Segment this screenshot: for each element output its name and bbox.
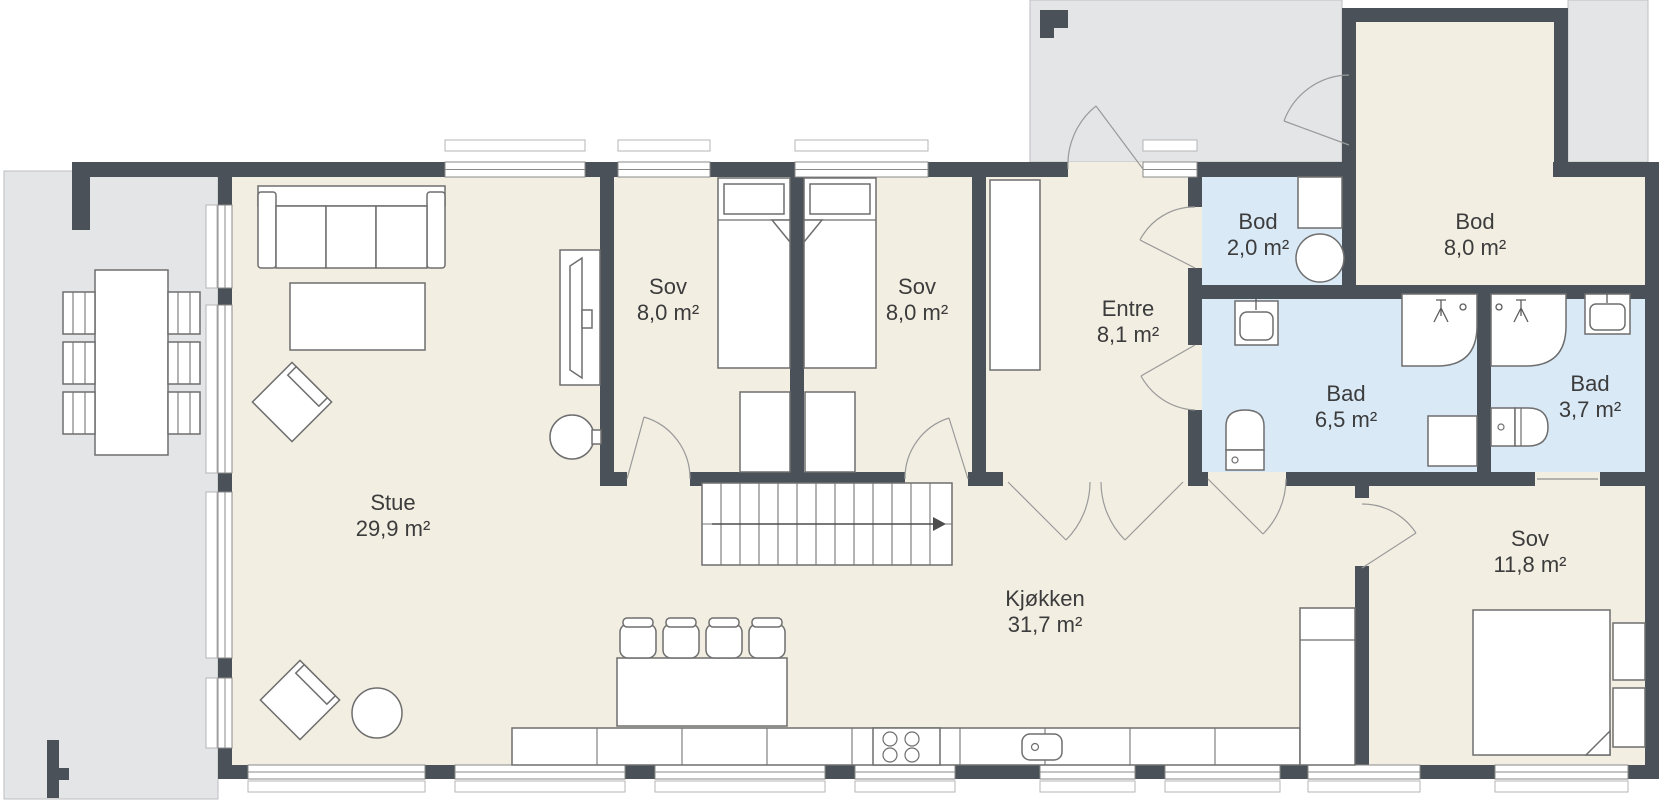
coffee-table [290,283,425,350]
stairs [702,483,952,565]
entry-porch-right [1568,0,1648,162]
room-label-sov1: Sov8,0 m² [578,274,758,326]
wall-sov1-sov2 [790,177,804,486]
room-label-kjokken: Kjøkken31,7 m² [955,586,1135,638]
wardrobe [805,392,855,472]
room-label-bod8: Bod8,0 m² [1385,209,1565,261]
kitchen-island [617,658,787,726]
tall-cabinet [1300,608,1355,765]
shower [1491,294,1566,366]
room-label-entre: Entre8,1 m² [1038,296,1218,348]
dining-table [95,270,168,455]
room-label-stue: Stue29,9 m² [303,490,483,542]
side-table [352,688,402,738]
wall-kjokken-sov [1355,566,1369,765]
room-label-bod2: Bod2,0 m² [1168,209,1348,261]
sink [1585,292,1630,334]
terrace [4,171,218,799]
sofa [258,186,445,268]
sink [1235,299,1278,345]
room-label-bad65: Bad6,5 m² [1256,381,1436,433]
nightstand [1613,688,1645,747]
terrace-wall-stub [72,162,90,230]
wall-sov2-entre [972,177,986,486]
double-bed [1473,610,1610,755]
pillow [810,184,870,214]
floor-entrance-threshold [1068,162,1143,177]
room-label-sov118: Sov11,8 m² [1440,526,1620,578]
wall-bad-divider [1477,299,1491,472]
room-label-bad37: Bad3,7 m² [1500,371,1670,423]
terrace-furniture [63,270,200,455]
nightstand [1613,623,1645,680]
stove [873,728,940,765]
floor-plan: Stue29,9 m² Sov8,0 m² Sov8,0 m² Entre8,1… [0,0,1670,800]
room-label-sov2: Sov8,0 m² [827,274,1007,326]
bod8-top-wall [1342,8,1568,22]
wardrobe [740,392,790,472]
entry-porch-left [1030,0,1342,162]
kitchen-sink [1022,734,1062,760]
wall-stue-sov1 [600,177,614,486]
pillow [724,184,784,214]
